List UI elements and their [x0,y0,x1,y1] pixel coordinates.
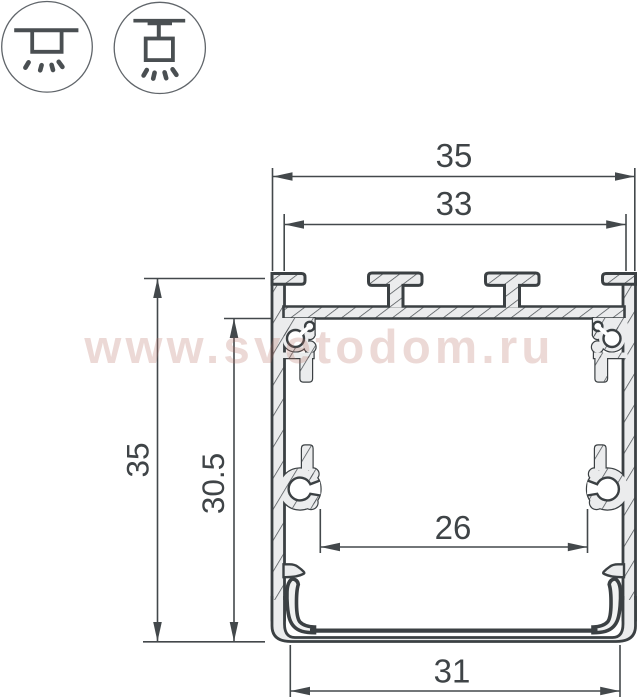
svg-text:35: 35 [436,137,473,174]
svg-text:31: 31 [434,653,471,690]
svg-text:26: 26 [435,509,472,546]
svg-text:30.5: 30.5 [195,453,231,514]
svg-text:35: 35 [120,442,156,477]
svg-text:33: 33 [436,185,473,222]
svg-text:www.svetodom.ru: www.svetodom.ru [83,321,554,374]
